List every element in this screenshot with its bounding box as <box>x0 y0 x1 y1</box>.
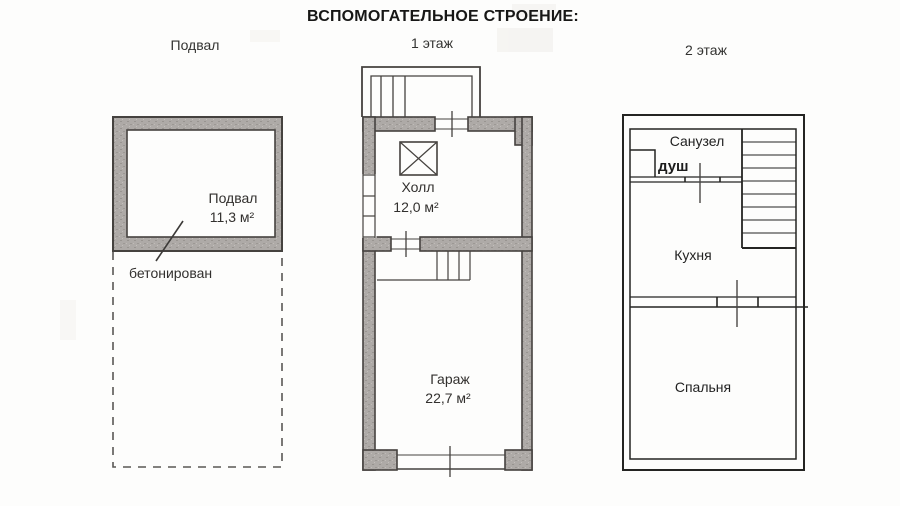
basement-room-area: 11,3 м² <box>210 209 255 225</box>
basement-room-name: Подвал <box>209 190 258 206</box>
floorplan-sheet: ВСПОМОГАТЕЛЬНОЕ СТРОЕНИЕ: Подвал 1 этаж … <box>0 0 900 506</box>
kitchen-name: Кухня <box>674 247 711 263</box>
column-label-basement: Подвал <box>171 37 220 53</box>
column-label-second-floor: 2 этаж <box>685 42 728 58</box>
hall-area: 12,0 м² <box>393 199 439 215</box>
bedroom-name: Спальня <box>675 379 731 395</box>
column-label-first-floor: 1 этаж <box>411 35 454 51</box>
sheet-title: ВСПОМОГАТЕЛЬНОЕ СТРОЕНИЕ: <box>307 8 579 25</box>
hall-name: Холл <box>402 179 435 195</box>
basement-note: бетонирован <box>129 265 212 281</box>
bathroom-name: Санузел <box>670 133 725 149</box>
hall-window <box>362 174 377 238</box>
garage-area: 22,7 м² <box>425 390 471 406</box>
shower-name: душ <box>658 158 689 175</box>
floorplan-canvas: ВСПОМОГАТЕЛЬНОЕ СТРОЕНИЕ: Подвал 1 этаж … <box>0 0 900 506</box>
garage-name: Гараж <box>430 371 470 387</box>
hall-hatch-symbol <box>400 142 437 175</box>
